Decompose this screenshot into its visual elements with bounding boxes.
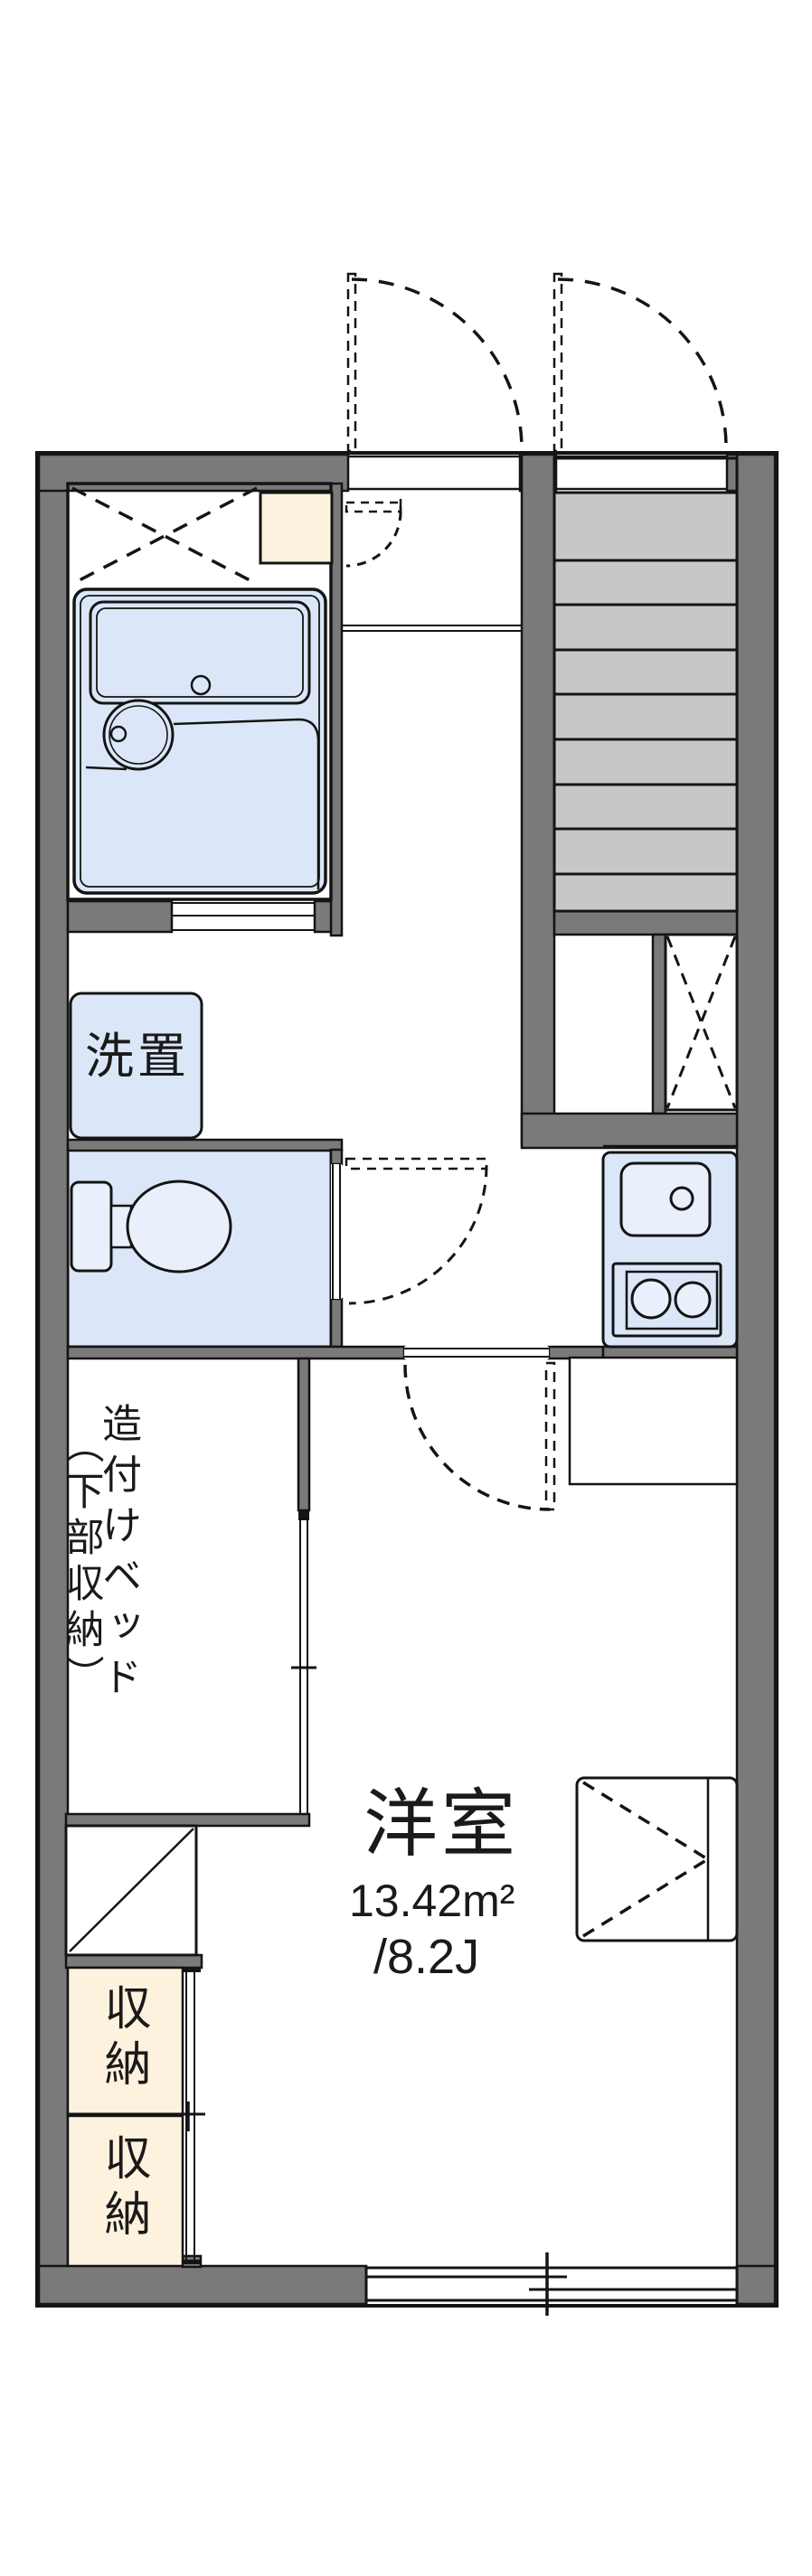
main-room-door-threshold <box>404 1347 549 1359</box>
wall-bottom-left <box>39 2266 366 2304</box>
toilet-bowl <box>127 1181 231 1272</box>
bed-label-main: 造付けベッド <box>98 1403 137 1706</box>
main-room-area-m2: 13.42m² <box>349 1878 515 1923</box>
storage-door-track <box>183 1968 201 2264</box>
bathroom-door-threshold <box>172 903 315 930</box>
wall-bed-right <box>298 1359 309 1510</box>
closet-x-mark <box>667 936 735 1108</box>
wall-closet-left <box>653 935 666 1114</box>
entry-door-left-arc <box>352 279 522 449</box>
wall-stair-left <box>522 455 554 1145</box>
bed-label-sub: （下部収納） <box>61 1424 100 1701</box>
wall-right <box>737 455 775 2304</box>
wall-left <box>39 455 68 2304</box>
bay-window <box>577 1778 737 1941</box>
wall-top-left <box>39 455 348 491</box>
wall-bottom-right <box>737 2266 775 2304</box>
burner-right <box>675 1283 710 1317</box>
wall-bath-bottom-left <box>68 901 172 932</box>
entry-door-right-arc <box>558 279 726 447</box>
toilet <box>71 1181 231 1272</box>
kitchen-sink <box>621 1163 710 1236</box>
bathroom-x-mark <box>72 488 257 584</box>
wall-bed-bottom <box>66 1814 309 1826</box>
main-room-area-jo: /8.2J <box>373 1932 479 1981</box>
entry-step-line <box>342 625 522 631</box>
fridge-space <box>570 1358 737 1484</box>
wall-bath-bottom-right <box>315 901 331 932</box>
wall-bed-right-cap <box>298 1510 309 1520</box>
toilet-doorway <box>331 1164 342 1299</box>
wall-toilet-top <box>68 1140 342 1151</box>
hall-door-leaf <box>346 503 401 512</box>
stair-treads <box>554 493 737 911</box>
wall-hall-bottom <box>68 1347 404 1359</box>
entry-door-opening-left <box>348 456 520 489</box>
bed-edge-line <box>291 1520 316 1814</box>
storage-upper-label: 収納 <box>99 1983 146 2095</box>
wall-kitchen-top <box>522 1114 737 1148</box>
wall-stair-bottom <box>554 911 737 935</box>
entry-door-right-leaf <box>554 274 562 451</box>
storage-lower-label: 収納 <box>99 2133 146 2245</box>
toilet-door-leaf <box>346 1159 486 1169</box>
wall-toilet-right-b <box>331 1299 342 1347</box>
kitchen-faucet <box>671 1188 693 1209</box>
burner-left <box>632 1280 670 1318</box>
washer-label: 洗置 <box>74 1032 201 1081</box>
main-door-arc <box>405 1365 550 1509</box>
water-heater-box <box>260 493 332 563</box>
floor-plan: 洗置 造付けベッド （下部収納） 収納 収納 洋室 13.42m² /8.2J <box>0 0 812 2576</box>
hall-door-arc <box>346 512 401 566</box>
kitchen-counter <box>603 1146 737 1347</box>
main-door-leaf <box>546 1363 554 1509</box>
toilet-tank <box>71 1182 111 1271</box>
wall-triangle-bottom <box>66 1955 202 1968</box>
wall-toilet-right-a <box>331 1150 342 1164</box>
wash-basin <box>104 700 173 769</box>
main-room-name: 洋室 <box>364 1788 519 1862</box>
toilet-door-arc <box>349 1166 486 1303</box>
entry-door-left-leaf <box>348 274 355 451</box>
